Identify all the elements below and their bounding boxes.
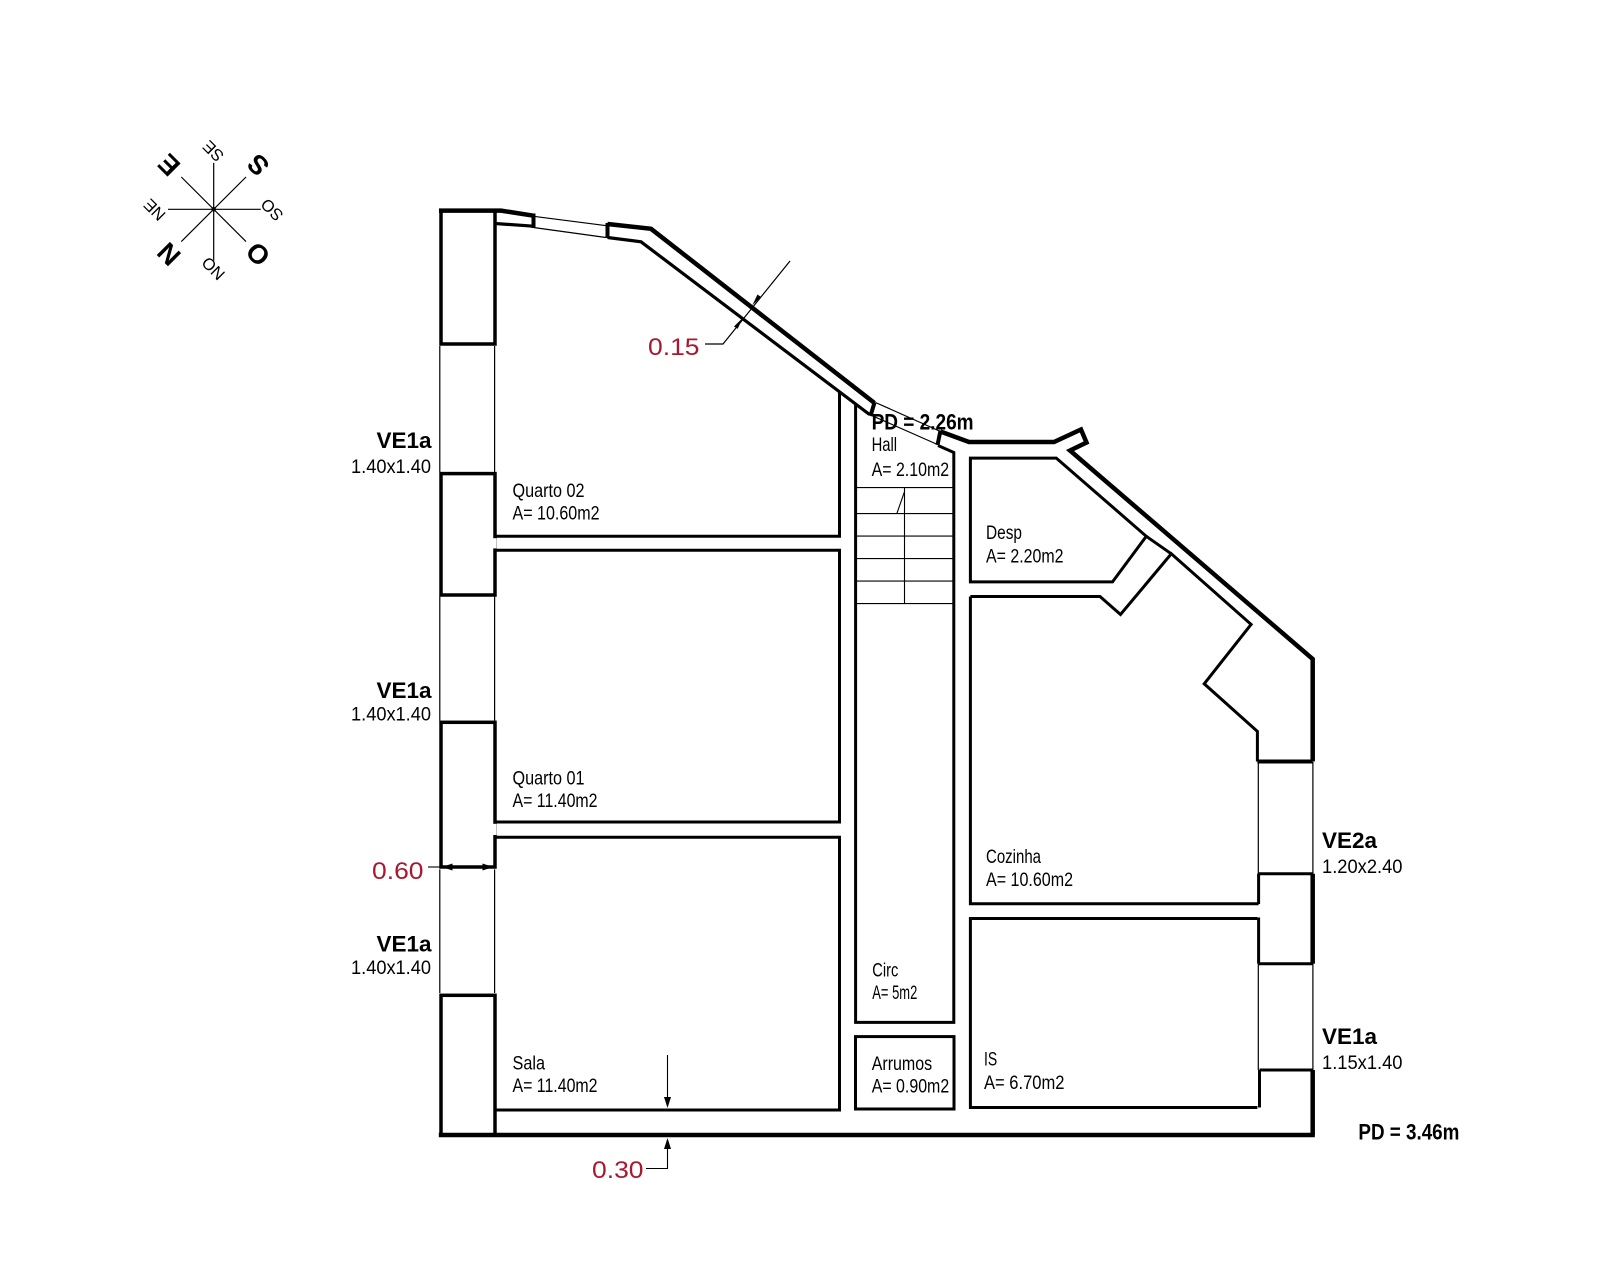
svg-text:PD = 3.46m: PD = 3.46m [1358,1120,1459,1145]
svg-text:Arrumos: Arrumos [872,1053,933,1075]
svg-text:0.30: 0.30 [592,1157,644,1184]
svg-text:Hall: Hall [872,434,898,456]
svg-text:A= 10.60m2: A= 10.60m2 [513,503,600,525]
svg-text:VE1a: VE1a [1322,1024,1378,1049]
svg-text:VE1a: VE1a [377,932,433,957]
svg-text:A= 0.90m2: A= 0.90m2 [872,1076,950,1098]
svg-text:VE1a: VE1a [377,678,433,703]
svg-text:A= 11.40m2: A= 11.40m2 [513,1075,598,1097]
svg-text:1.40x1.40: 1.40x1.40 [351,957,431,979]
svg-text:Desp: Desp [986,522,1022,544]
svg-text:1.40x1.40: 1.40x1.40 [351,704,431,726]
svg-text:PD = 2.26m: PD = 2.26m [872,410,974,435]
svg-text:A= 6.70m2: A= 6.70m2 [984,1072,1065,1094]
svg-text:A= 11.40m2: A= 11.40m2 [513,790,598,812]
svg-text:0.60: 0.60 [372,858,424,885]
svg-text:Cozinha: Cozinha [986,846,1041,868]
svg-text:1.20x2.40: 1.20x2.40 [1322,856,1403,878]
svg-text:A= 5m2: A= 5m2 [872,982,917,1004]
svg-text:Circ: Circ [872,960,898,982]
svg-text:VE2a: VE2a [1322,828,1378,853]
svg-text:1.15x1.40: 1.15x1.40 [1322,1052,1403,1074]
svg-text:Quarto 01: Quarto 01 [513,768,585,790]
svg-text:A= 2.20m2: A= 2.20m2 [986,546,1064,568]
svg-text:Quarto 02: Quarto 02 [513,480,585,502]
svg-text:0.15: 0.15 [648,334,700,361]
svg-text:Sala: Sala [513,1053,546,1075]
svg-text:A= 10.60m2: A= 10.60m2 [986,869,1073,891]
svg-text:A= 2.10m2: A= 2.10m2 [872,459,950,481]
svg-text:1.40x1.40: 1.40x1.40 [351,456,431,478]
svg-text:VE1a: VE1a [377,428,433,453]
svg-text:IS: IS [984,1049,997,1071]
